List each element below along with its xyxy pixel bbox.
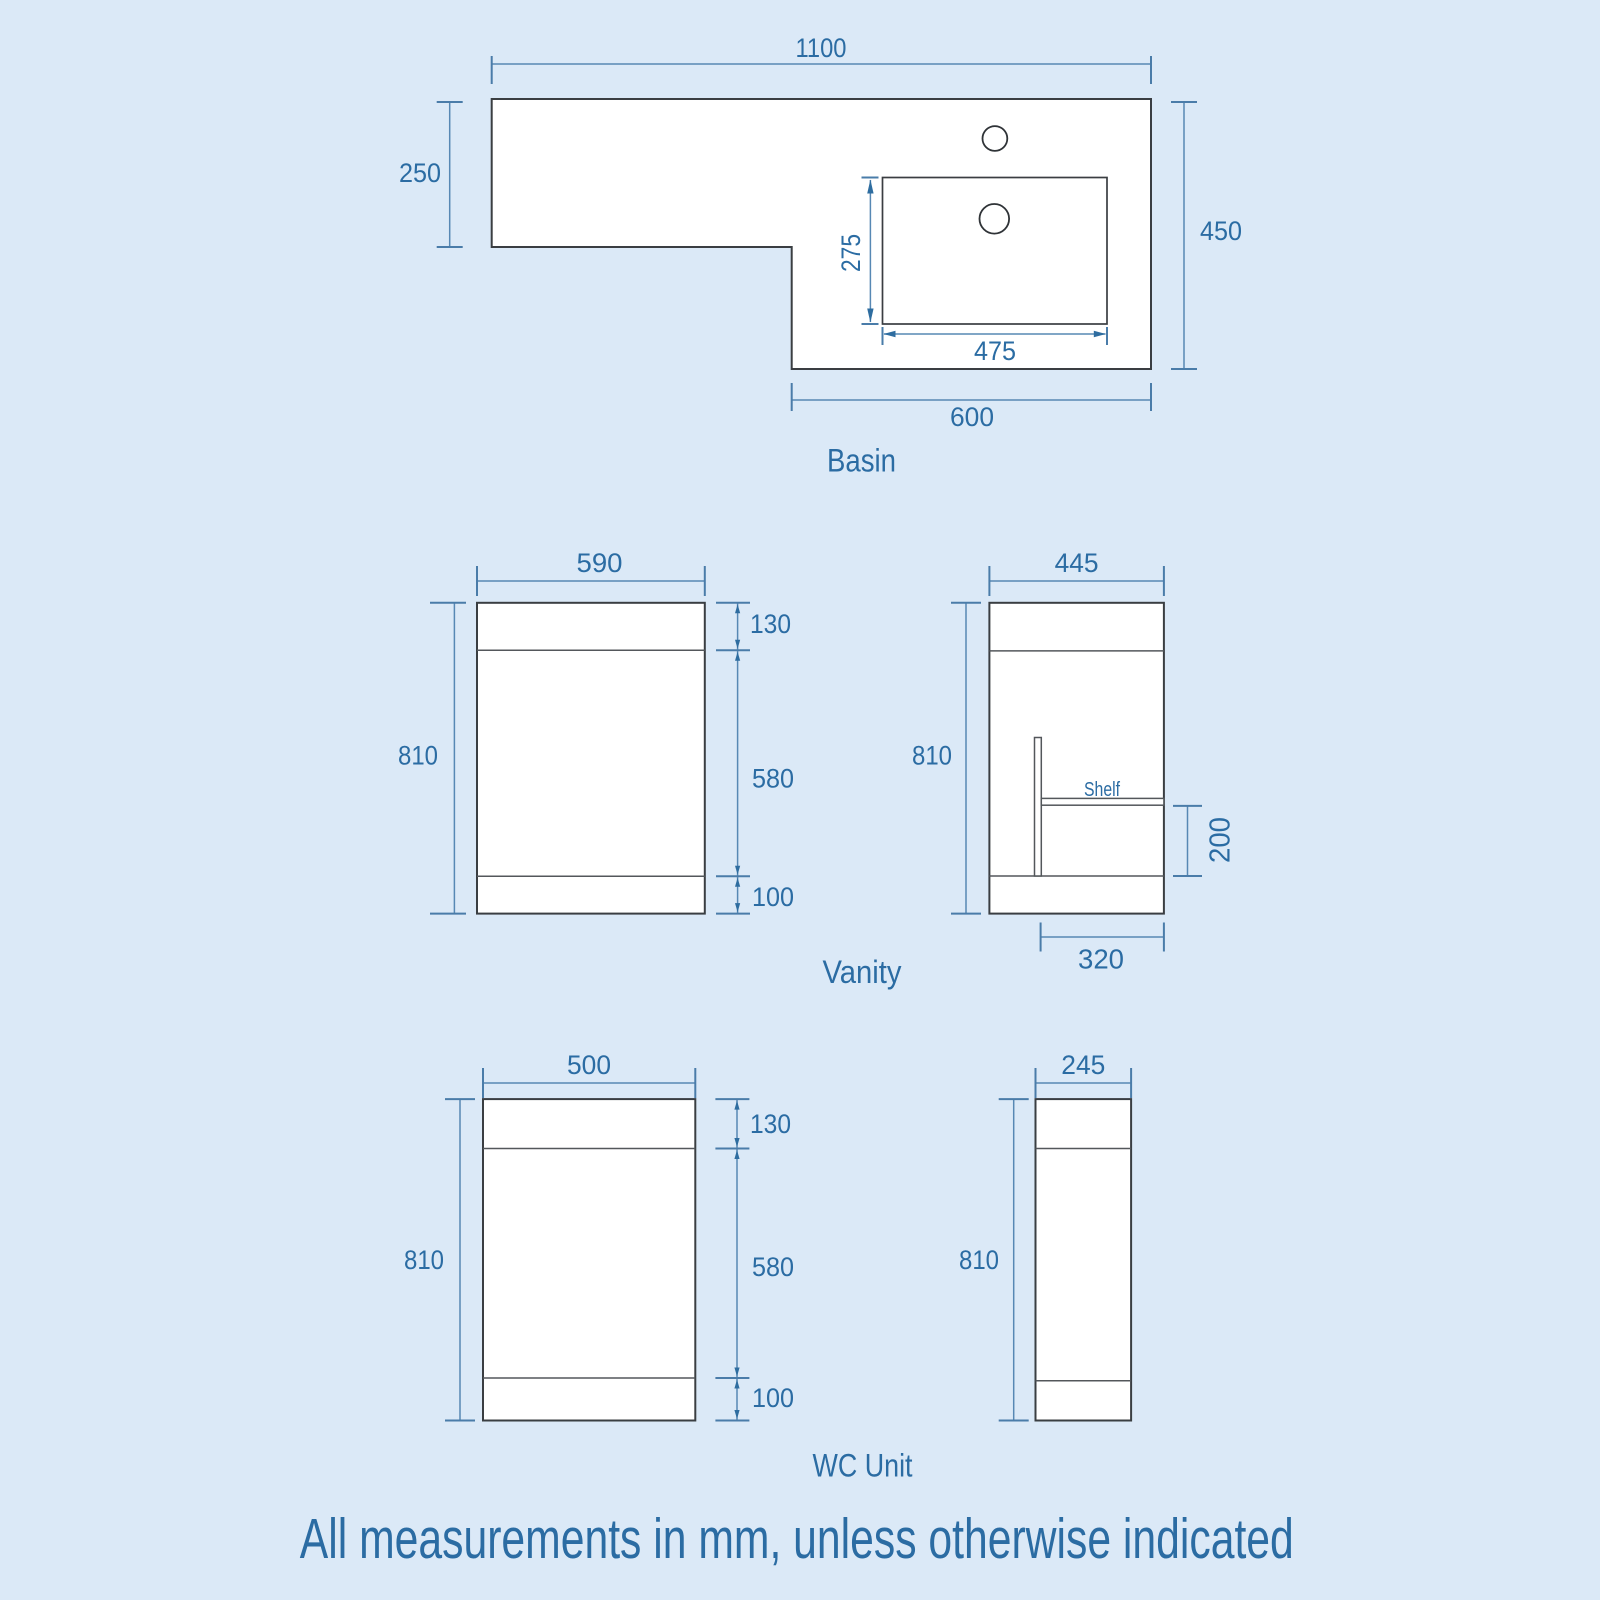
svg-text:810: 810 [959, 1245, 999, 1275]
svg-text:590: 590 [577, 548, 623, 578]
svg-text:100: 100 [752, 882, 794, 912]
svg-text:All measurements in mm, unless: All measurements in mm, unless otherwise… [300, 1507, 1294, 1571]
svg-text:445: 445 [1055, 548, 1099, 578]
svg-text:810: 810 [912, 740, 952, 770]
svg-text:Basin: Basin [827, 443, 896, 479]
svg-text:810: 810 [404, 1245, 444, 1275]
svg-text:475: 475 [974, 336, 1016, 366]
svg-text:Shelf: Shelf [1084, 779, 1120, 801]
svg-text:450: 450 [1200, 216, 1242, 246]
svg-text:1100: 1100 [796, 33, 847, 63]
svg-text:130: 130 [750, 609, 791, 639]
svg-text:250: 250 [399, 158, 441, 188]
svg-text:275: 275 [836, 234, 866, 272]
svg-text:810: 810 [398, 740, 438, 770]
svg-text:245: 245 [1061, 1050, 1105, 1080]
svg-text:600: 600 [950, 402, 994, 432]
svg-text:WC Unit: WC Unit [813, 1448, 913, 1484]
svg-text:500: 500 [567, 1050, 611, 1080]
svg-text:580: 580 [752, 1252, 794, 1282]
svg-text:100: 100 [752, 1383, 794, 1413]
svg-text:580: 580 [752, 764, 794, 794]
svg-text:320: 320 [1078, 944, 1124, 975]
svg-text:130: 130 [750, 1109, 791, 1139]
svg-text:200: 200 [1205, 817, 1237, 863]
svg-text:Vanity: Vanity [823, 954, 902, 990]
